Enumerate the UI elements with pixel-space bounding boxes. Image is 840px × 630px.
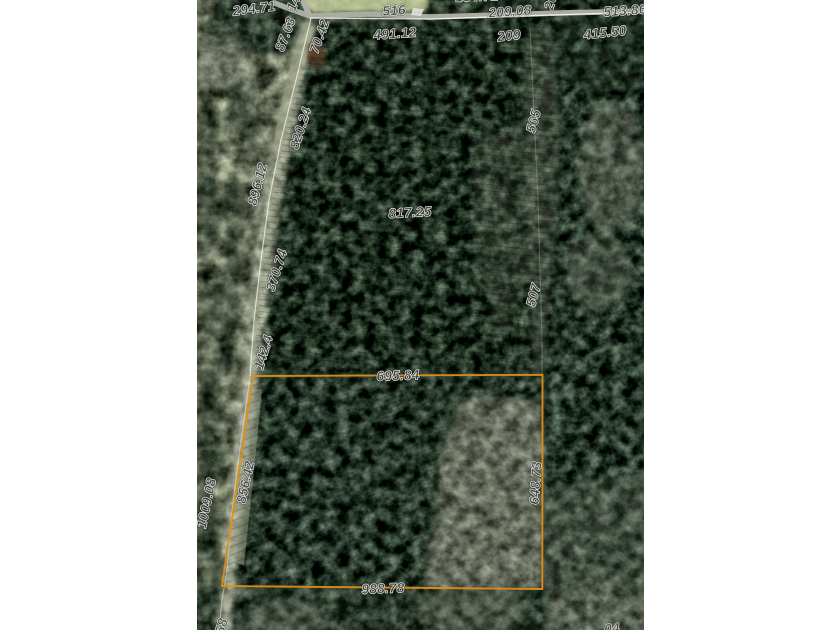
svg-text:04: 04 (604, 620, 621, 630)
svg-text:209: 209 (496, 27, 522, 44)
svg-text:695.84: 695.84 (376, 367, 420, 384)
svg-text:988.78: 988.78 (361, 580, 405, 597)
svg-text:516: 516 (382, 2, 407, 19)
svg-text:209.08: 209.08 (487, 3, 532, 21)
svg-text:648.73: 648.73 (527, 461, 545, 505)
svg-text:513.86: 513.86 (603, 2, 647, 20)
svg-text:817.25: 817.25 (388, 204, 432, 221)
svg-text:491.12: 491.12 (372, 25, 417, 43)
